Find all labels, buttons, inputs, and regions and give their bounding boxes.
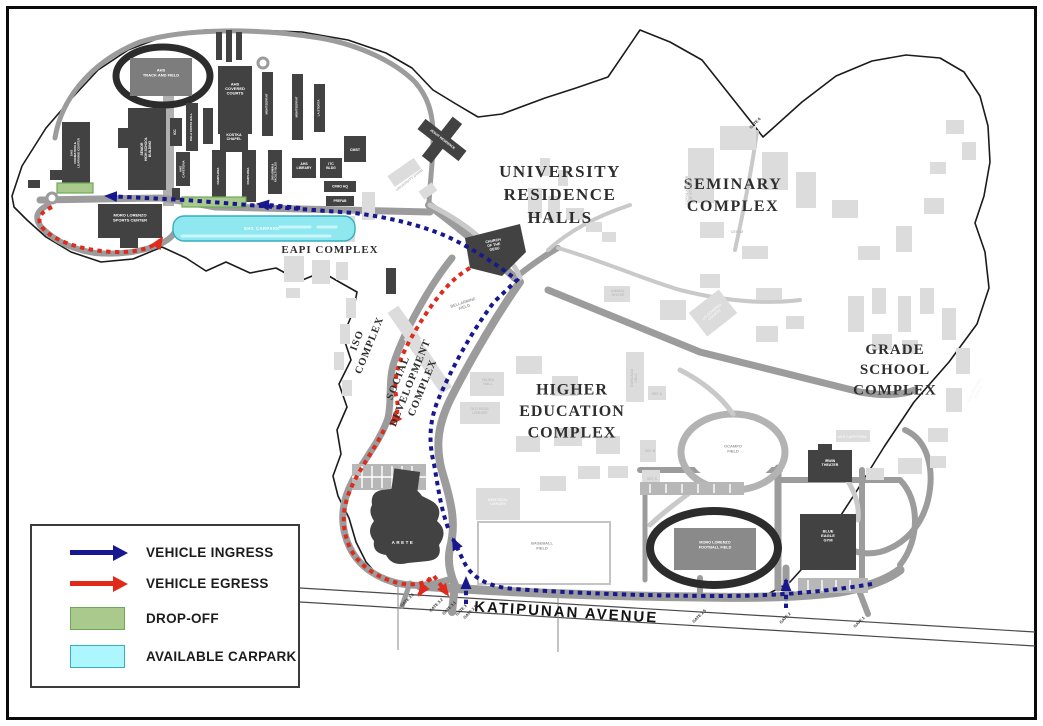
baseball-field bbox=[478, 522, 610, 584]
legend-label-ingress: VEHICLE INGRESS bbox=[146, 545, 274, 560]
carpark-swatch-icon bbox=[70, 645, 125, 668]
label-jhs-admin: JHS ADMIN &FACULTY BLDG bbox=[271, 162, 278, 182]
label-prefab: PREFAB bbox=[334, 199, 348, 203]
label-eapi-complex: EAPI COMPLEX bbox=[281, 244, 378, 256]
ingress-arrow-icon bbox=[70, 545, 128, 561]
label-moro-lorenzo-football-field: MORO LORENZOFOOTBALL FIELD bbox=[699, 541, 732, 550]
label-gate-2-5: GATE 2.5 bbox=[691, 607, 707, 623]
label-arete: ARETE bbox=[392, 540, 415, 545]
label-pamplona-2: PAMPLONA bbox=[246, 167, 250, 185]
label-faura-hall: FAURAHALL bbox=[482, 378, 495, 386]
label-la-storta: LA STORTA bbox=[317, 99, 321, 117]
label-kostka-chapel: KOSTKACHAPEL bbox=[226, 133, 242, 141]
label-sec-c: SEC C bbox=[647, 477, 658, 481]
campus-vehicle-routes-map-page: UNIVERSITYRESIDENCEHALLSSEMINARYCOMPLEXG… bbox=[0, 0, 1043, 726]
dropoff-zone-shs bbox=[57, 183, 93, 193]
label-ags-covered-courts: AGS COVEREDCOURTS bbox=[966, 378, 986, 406]
egress-arrow-icon bbox=[70, 576, 128, 592]
label-montserrat-2: MONTSERRAT bbox=[295, 96, 299, 117]
label-cefam: CEFAM bbox=[731, 230, 744, 234]
label-grade-school-complex: GRADESCHOOLCOMPLEX bbox=[853, 342, 937, 399]
legend-row-egress: VEHICLE EGRESS bbox=[70, 576, 298, 592]
legend-label-carpark: AVAILABLE CARPARK bbox=[146, 649, 297, 664]
label-new-rizal-library: NEW RIZALLIBRARY bbox=[488, 498, 509, 506]
label-dela-costa-hall: DELA COSTA HALL bbox=[189, 113, 193, 141]
label-sec-a: SEC A bbox=[652, 392, 663, 396]
dropoff-swatch-icon bbox=[70, 607, 125, 630]
label-animal-house: ANIMALHOUSE bbox=[611, 289, 626, 297]
ahs-covered-courts bbox=[218, 66, 252, 134]
label-sec-b: SEC B bbox=[645, 449, 656, 453]
label-icc: ICC bbox=[173, 129, 177, 135]
label-ags-cafeteria: AGS CAFETERIA bbox=[837, 435, 867, 439]
legend-row-dropoff: DROP-OFF bbox=[70, 607, 298, 630]
label-cmst: CMST bbox=[350, 148, 361, 152]
legend-label-egress: VEHICLE EGRESS bbox=[146, 576, 269, 591]
legend: VEHICLE INGRESS VEHICLE EGRESS DROP-OFF … bbox=[30, 524, 300, 688]
label-moro-lorenzo-sports-center: MORO LORENZOSPORTS CENTER bbox=[113, 212, 147, 222]
label-old-rizal-library: OLD RIZALLIBRARY bbox=[470, 407, 490, 415]
label-loyola-house-of-studies: LOYOLA HOUSEOF STUDIES bbox=[685, 175, 693, 204]
label-montserrat-1: MONTSERRAT bbox=[265, 93, 269, 114]
legend-row-ingress: VEHICLE INGRESS bbox=[70, 545, 298, 561]
legend-row-carpark: AVAILABLE CARPARK bbox=[70, 645, 298, 668]
label-cfmo-hq: CFMO HQ bbox=[332, 185, 348, 189]
label-katipunan-avenue: KATIPUNAN AVENUE bbox=[474, 598, 659, 626]
label-shs-carpark: SHS CARPARK bbox=[244, 226, 280, 231]
legend-label-dropoff: DROP-OFF bbox=[146, 611, 219, 626]
label-pamplona-1: PAMPLONA bbox=[216, 167, 220, 185]
